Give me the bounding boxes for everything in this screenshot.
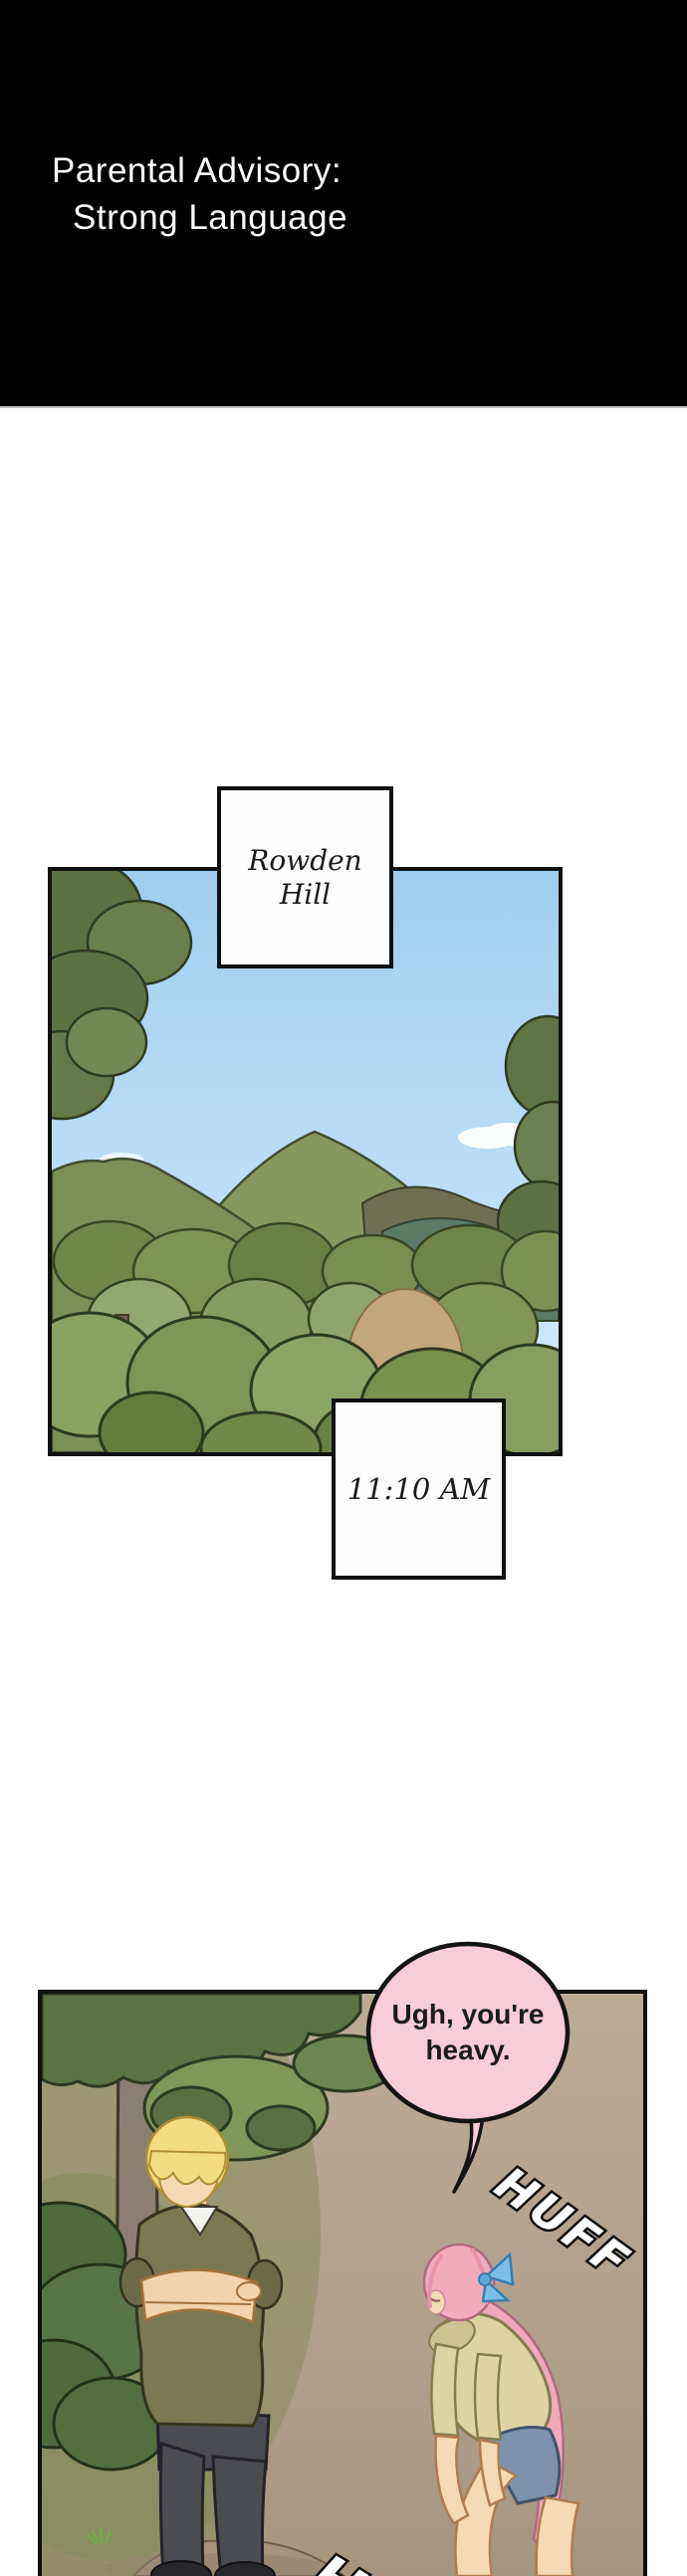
speech-bubble: Ugh, you're heavy.	[348, 1936, 587, 2215]
caption-box-location: Rowden Hill	[217, 786, 393, 968]
caption-location-line1: Rowden	[248, 844, 361, 878]
speech-text-line1: Ugh, you're	[392, 1999, 545, 2030]
caption-time-text: 11:10 AM	[347, 1472, 490, 1506]
speech-bubble-tail	[454, 2116, 483, 2192]
comic-page: Parental Advisory: Strong Language	[0, 0, 687, 2576]
man-left-leg	[160, 2444, 204, 2576]
advisory-line-1: Parental Advisory:	[52, 151, 342, 191]
man-right-leg	[213, 2457, 266, 2576]
woman-far-leg	[537, 2497, 578, 2576]
speech-text-line2: heavy.	[425, 2035, 510, 2065]
man-bangs	[149, 2151, 226, 2185]
caption-box-time: 11:10 AM	[332, 1398, 506, 1580]
speech-bubble-body	[368, 1944, 568, 2121]
advisory-banner: Parental Advisory: Strong Language	[0, 0, 687, 408]
advisory-line-2: Strong Language	[73, 198, 347, 238]
caption-location-line2: Hill	[280, 878, 331, 912]
